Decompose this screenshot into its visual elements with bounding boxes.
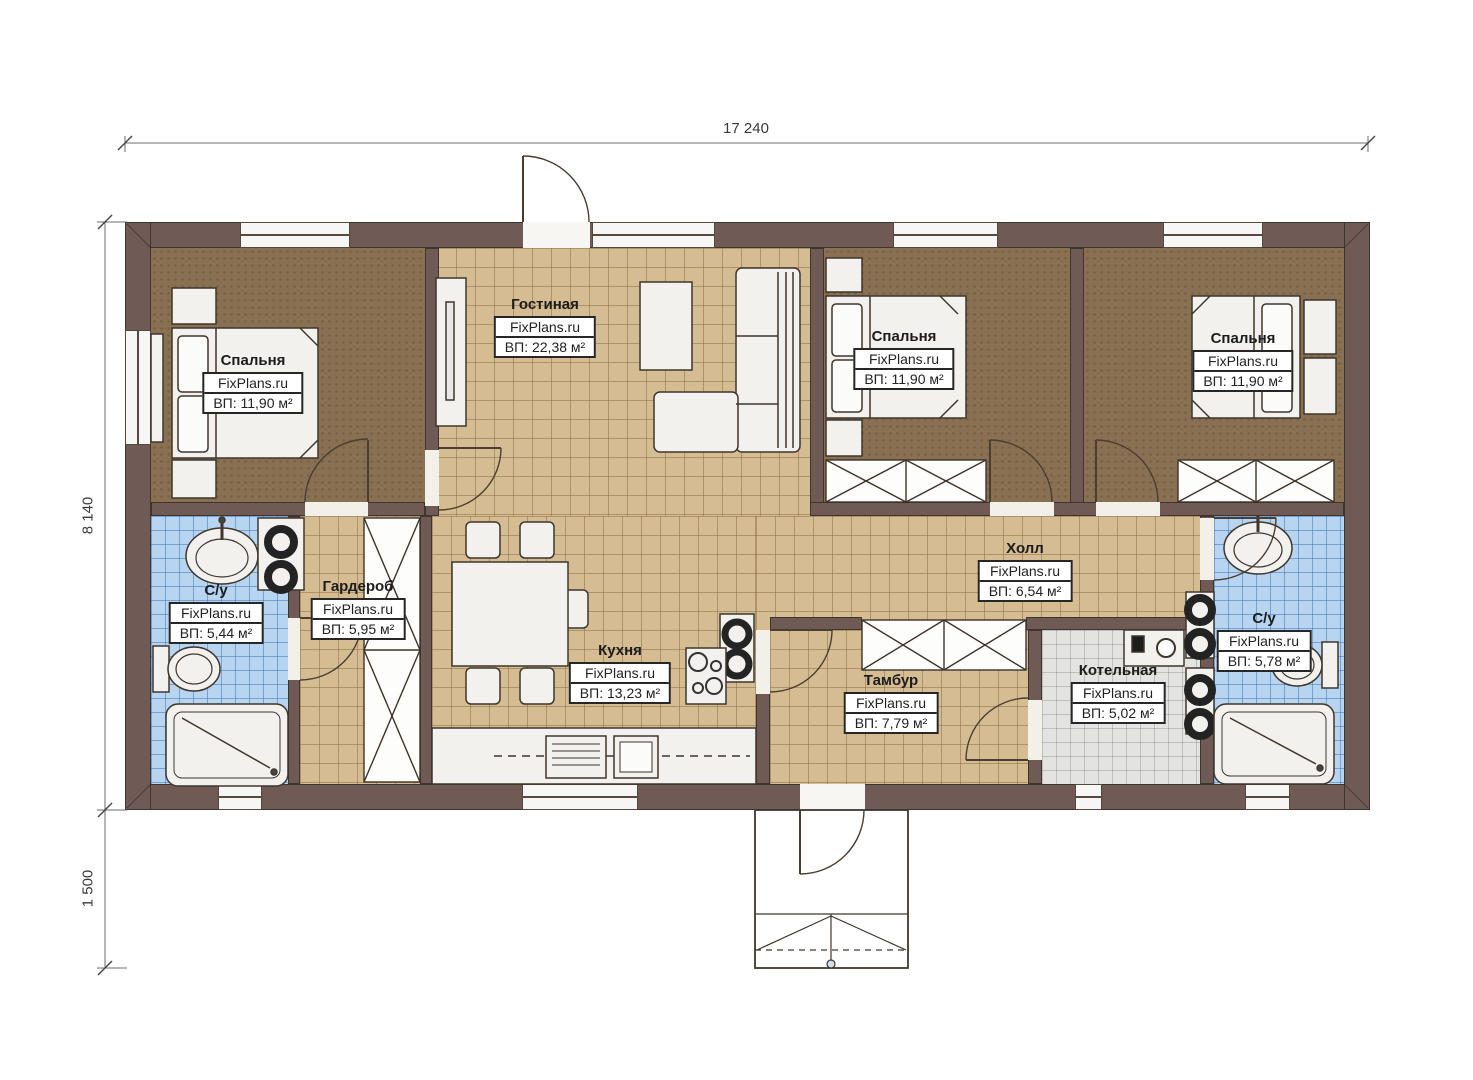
- room-name: С/у: [169, 582, 264, 599]
- room-name: Гардероб: [311, 578, 406, 595]
- room-name: Спальня: [202, 352, 303, 369]
- dimension-total-width: 17 240: [646, 120, 846, 137]
- room-label-bathroom-right: С/у FixPlans.ru ВП: 5,78 м²: [1217, 610, 1312, 672]
- watermark: FixPlans.ru: [1219, 632, 1310, 652]
- room-info-box: FixPlans.ru ВП: 5,02 м²: [1071, 682, 1166, 724]
- room-label-hall: Холл FixPlans.ru ВП: 6,54 м²: [978, 540, 1073, 602]
- room-label-living-room: Гостиная FixPlans.ru ВП: 22,38 м²: [494, 296, 596, 358]
- watermark: FixPlans.ru: [846, 694, 937, 714]
- room-name: Холл: [978, 540, 1073, 557]
- closet-wardrobe: [364, 518, 420, 782]
- room-name: Котельная: [1071, 662, 1166, 679]
- room-area: ВП: 11,90 м²: [204, 394, 301, 412]
- closet-bedroom-middle: [826, 460, 986, 502]
- toilet-left: [153, 646, 220, 692]
- room-area: ВП: 6,54 м²: [980, 582, 1071, 600]
- watermark: FixPlans.ru: [496, 318, 594, 338]
- room-area: ВП: 5,44 м²: [171, 624, 262, 642]
- room-area: ВП: 11,90 м²: [855, 370, 952, 388]
- room-info-box: FixPlans.ru ВП: 11,90 м²: [1192, 350, 1293, 392]
- dining-set: [452, 522, 588, 704]
- room-info-box: FixPlans.ru ВП: 5,95 м²: [311, 598, 406, 640]
- water-heater-stack: [1186, 592, 1214, 736]
- room-name: Спальня: [1192, 330, 1293, 347]
- door-living: [439, 448, 501, 510]
- shower-right: [1214, 704, 1334, 784]
- door-boiler: [966, 698, 1028, 760]
- room-name: Тамбур: [844, 672, 939, 689]
- watermark: FixPlans.ru: [204, 374, 301, 394]
- room-label-bedroom-middle: Спальня FixPlans.ru ВП: 11,90 м²: [853, 328, 954, 390]
- door-bedroom-right: [1096, 440, 1158, 502]
- sink-left: [186, 517, 258, 584]
- watermark: FixPlans.ru: [855, 350, 952, 370]
- closet-vestibule: [862, 620, 1026, 670]
- room-area: ВП: 5,02 м²: [1073, 704, 1164, 722]
- room-area: ВП: 11,90 м²: [1194, 372, 1291, 390]
- room-info-box: FixPlans.ru ВП: 11,90 м²: [202, 372, 303, 414]
- door-vestibule: [770, 630, 832, 692]
- sink-right: [1224, 516, 1292, 574]
- room-name: Гостиная: [494, 296, 596, 313]
- cooktop: [686, 648, 726, 704]
- room-area: ВП: 7,79 м²: [846, 714, 937, 732]
- watermark: FixPlans.ru: [571, 664, 669, 684]
- room-info-box: FixPlans.ru ВП: 6,54 м²: [978, 560, 1073, 602]
- window-sill-left: [151, 334, 163, 442]
- dimension-total-height: 8 140: [80, 471, 97, 561]
- room-label-bedroom-right: Спальня FixPlans.ru ВП: 11,90 м²: [1192, 330, 1293, 392]
- room-area: ВП: 5,78 м²: [1219, 652, 1310, 670]
- shower-left: [166, 704, 288, 786]
- tv-unit: [436, 278, 466, 426]
- room-info-box: FixPlans.ru ВП: 22,38 м²: [494, 316, 596, 358]
- room-info-box: FixPlans.ru ВП: 5,44 м²: [169, 602, 264, 644]
- floor-plan: Спальня FixPlans.ru ВП: 11,90 м² Гостина…: [0, 0, 1473, 1080]
- room-label-wardrobe: Гардероб FixPlans.ru ВП: 5,95 м²: [311, 578, 406, 640]
- room-info-box: FixPlans.ru ВП: 5,78 м²: [1217, 630, 1312, 672]
- washer: [258, 518, 304, 590]
- room-label-bedroom-left: Спальня FixPlans.ru ВП: 11,90 м²: [202, 352, 303, 414]
- room-label-kitchen: Кухня FixPlans.ru ВП: 13,23 м²: [569, 642, 671, 704]
- porch: [755, 810, 908, 968]
- room-info-box: FixPlans.ru ВП: 7,79 м²: [844, 692, 939, 734]
- watermark: FixPlans.ru: [1194, 352, 1291, 372]
- room-label-bathroom-left: С/у FixPlans.ru ВП: 5,44 м²: [169, 582, 264, 644]
- room-name: Спальня: [853, 328, 954, 345]
- room-name: С/у: [1217, 610, 1312, 627]
- watermark: FixPlans.ru: [313, 600, 404, 620]
- room-name: Кухня: [569, 642, 671, 659]
- plan-overlay: [0, 0, 1473, 1080]
- watermark: FixPlans.ru: [980, 562, 1071, 582]
- door-bedroom-middle: [990, 440, 1052, 502]
- watermark: FixPlans.ru: [1073, 684, 1164, 704]
- boiler-unit: [1124, 630, 1184, 666]
- room-info-box: FixPlans.ru ВП: 13,23 м²: [569, 662, 671, 704]
- room-area: ВП: 13,23 м²: [571, 684, 669, 702]
- side-table: [640, 282, 692, 370]
- room-area: ВП: 5,95 м²: [313, 620, 404, 638]
- closet-bedroom-right: [1178, 460, 1334, 502]
- watermark: FixPlans.ru: [171, 604, 262, 624]
- kitchen-counter: [432, 728, 756, 784]
- room-area: ВП: 22,38 м²: [496, 338, 594, 356]
- room-label-boiler-room: Котельная FixPlans.ru ВП: 5,02 м²: [1071, 662, 1166, 724]
- door-front: [523, 156, 589, 222]
- room-info-box: FixPlans.ru ВП: 11,90 м²: [853, 348, 954, 390]
- room-label-vestibule: Тамбур FixPlans.ru ВП: 7,79 м²: [844, 672, 939, 734]
- dimension-porch-depth: 1 500: [80, 844, 97, 934]
